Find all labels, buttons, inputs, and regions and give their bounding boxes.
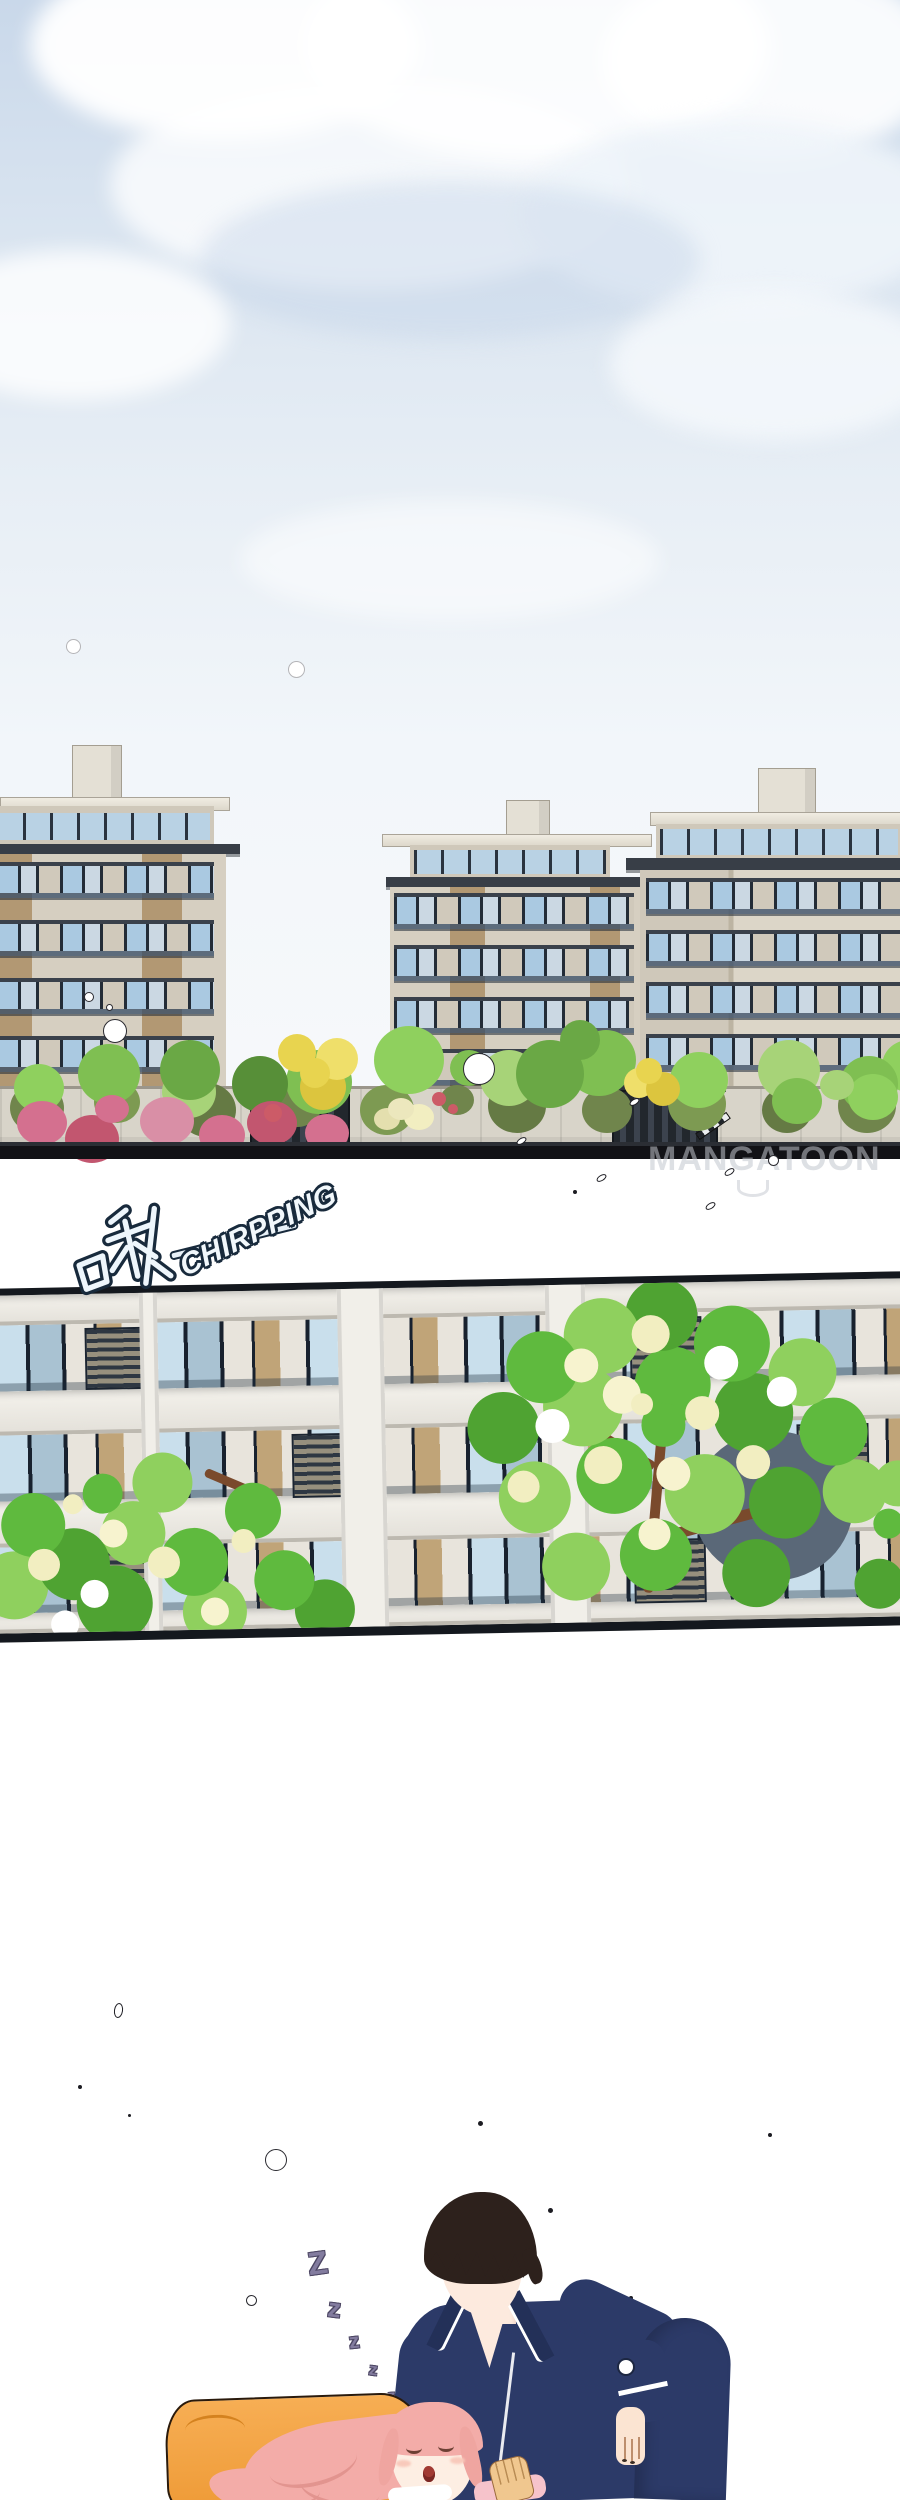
speck [768, 2133, 772, 2137]
cloud [200, 180, 700, 340]
sfx-chinese: 啾 [54, 1192, 182, 1320]
tree-foliage [873, 1508, 900, 1539]
finger-tip [630, 2461, 635, 2464]
finger-line [631, 2439, 633, 2461]
finger-line [624, 2437, 626, 2459]
floor-windows [646, 878, 900, 909]
roof-eave [626, 858, 900, 870]
bubble [103, 1019, 127, 1043]
girl-blush [450, 2457, 465, 2464]
roof-tower [72, 745, 122, 805]
roof-eave [386, 877, 648, 887]
speck [595, 1173, 608, 1184]
sfx-zzz: z [368, 2360, 379, 2381]
floor-windows [646, 930, 900, 961]
wall-sign [310, 1128, 344, 1140]
sfx-chirpping: CHIRPPING [175, 1177, 342, 1284]
penthouse-windows [414, 850, 606, 874]
floor-windows [0, 920, 214, 951]
cloud [240, 500, 660, 620]
bubble [288, 661, 305, 678]
floor-windows [394, 997, 634, 1028]
girl-eye-closed [438, 2440, 454, 2452]
penthouse-windows [660, 829, 898, 855]
floor-windows [0, 862, 214, 893]
yellow-tree [300, 1058, 330, 1088]
finger-tip [622, 2459, 627, 2462]
bubble [265, 2149, 287, 2171]
girl-blush [396, 2460, 411, 2467]
sfx-zzz: z [348, 2330, 361, 2355]
floor-windows [646, 1034, 900, 1065]
girl-mouth-open [423, 2466, 435, 2482]
speck [78, 2085, 82, 2089]
bubble [463, 1053, 495, 1085]
speck [113, 2002, 124, 2018]
speck [548, 2208, 553, 2213]
floor-windows [646, 982, 900, 1013]
man-hand [616, 2407, 645, 2465]
bubble [84, 992, 94, 1002]
panel2-building-closeup [0, 1271, 900, 1643]
pilaster [337, 1288, 389, 1627]
speck [704, 1201, 717, 1212]
floor-windows [394, 1049, 634, 1080]
floor-windows [394, 945, 634, 976]
sfx-zzz: Z [306, 2244, 331, 2283]
roof-tower [758, 768, 816, 816]
scene-sleeping: Z z z z z [0, 2090, 900, 2500]
right-bushes [820, 1070, 854, 1100]
tall-trees [560, 1020, 600, 1060]
watermark-smile-icon [737, 1180, 769, 1197]
yellow-tree [636, 1058, 662, 1084]
sfx-zzz: z [326, 2292, 343, 2324]
bubble [106, 1004, 113, 1011]
red-bush [432, 1092, 446, 1106]
pillow-fold [185, 2414, 246, 2445]
man-shirt-button [617, 2358, 635, 2376]
speck [573, 1190, 577, 1194]
roof-eave [0, 844, 240, 854]
pilaster [545, 1284, 591, 1623]
bubble [66, 639, 81, 654]
vent-grille [629, 1316, 702, 1379]
man-hair [424, 2192, 537, 2284]
girl-eye-closed [406, 2442, 422, 2454]
watermark: MANGATOON [648, 1140, 881, 1179]
speck [768, 1155, 779, 1166]
cream-bush [388, 1098, 414, 1120]
floor-windows [394, 893, 634, 924]
bubble [246, 2295, 257, 2306]
sfx-chinese-glyph-icon [54, 1192, 182, 1320]
comic-page: MANGATOON 啾 [0, 0, 900, 2500]
penthouse-windows [0, 813, 210, 840]
pink-bushes [95, 1095, 129, 1123]
finger-line [638, 2437, 640, 2459]
speck [478, 2121, 483, 2126]
